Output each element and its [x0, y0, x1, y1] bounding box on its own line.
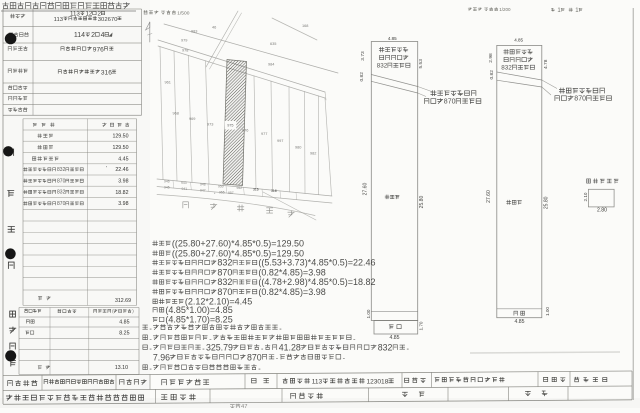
svg-text:(4.85*1.70)=8.25: (4.85*1.70)=8.25	[165, 315, 232, 325]
svg-text:25.80: 25.80	[544, 196, 550, 209]
svg-text:870: 870	[217, 267, 232, 277]
svg-text:976: 976	[93, 46, 104, 53]
svg-text:997: 997	[277, 138, 283, 143]
svg-text:870: 870	[574, 96, 586, 103]
svg-text:957: 957	[228, 191, 234, 195]
svg-text:4.78: 4.78	[543, 59, 549, 69]
svg-text:832: 832	[217, 277, 232, 287]
svg-text:979: 979	[181, 38, 187, 43]
svg-text:302670: 302670	[98, 17, 118, 23]
svg-text:870: 870	[217, 287, 232, 297]
svg-text:7.96: 7.96	[153, 352, 170, 362]
svg-text:22.46: 22.46	[115, 167, 128, 173]
svg-text:947: 947	[200, 189, 206, 193]
svg-text:316: 316	[101, 69, 112, 76]
svg-text:312.69: 312.69	[115, 298, 131, 304]
svg-text:4.85: 4.85	[514, 37, 523, 42]
svg-text:984: 984	[268, 62, 275, 67]
svg-text:1.00: 1.00	[545, 307, 550, 316]
svg-text:18.82: 18.82	[115, 190, 128, 196]
svg-text:832: 832	[501, 64, 512, 71]
svg-text:46: 46	[212, 24, 216, 29]
svg-text:2.80: 2.80	[597, 208, 607, 214]
svg-text:(0.82*4.85)=3.98: (0.82*4.85)=3.98	[258, 267, 325, 277]
svg-text:870: 870	[247, 352, 262, 362]
svg-text:25.80: 25.80	[419, 196, 425, 209]
svg-text:129.50: 129.50	[112, 134, 128, 140]
svg-text:((4.78+2.98)*4.85*0.5)=18.82: ((4.78+2.98)*4.85*0.5)=18.82	[258, 277, 375, 287]
svg-text:113: 113	[54, 17, 64, 23]
svg-text:2.10: 2.10	[583, 192, 588, 201]
svg-text:1.00: 1.00	[366, 309, 371, 318]
svg-text:318: 318	[271, 189, 277, 193]
svg-text:47: 47	[241, 404, 247, 408]
svg-text:832: 832	[57, 190, 66, 196]
svg-text:976: 976	[242, 128, 248, 133]
svg-text:832: 832	[217, 258, 232, 268]
svg-text:5.53: 5.53	[418, 59, 424, 69]
svg-text:13.10: 13.10	[115, 365, 128, 371]
svg-text:961: 961	[165, 80, 171, 85]
svg-text:870: 870	[57, 179, 66, 185]
svg-text:1.70: 1.70	[418, 321, 423, 330]
svg-text:4.85: 4.85	[388, 36, 397, 41]
svg-text:950: 950	[218, 184, 224, 188]
svg-text:4.85: 4.85	[514, 319, 524, 325]
svg-text:(4.85*1.00)=4.85: (4.85*1.00)=4.85	[165, 305, 232, 315]
svg-text:27.60: 27.60	[363, 183, 369, 196]
svg-text:41.28: 41.28	[279, 343, 301, 353]
svg-text:978: 978	[182, 48, 188, 53]
svg-text:(0.82*4.85)=3.98: (0.82*4.85)=3.98	[258, 287, 325, 297]
svg-text:4: 4	[101, 32, 105, 39]
svg-text:943: 943	[181, 181, 187, 185]
svg-text:973: 973	[207, 122, 213, 127]
svg-text:975: 975	[227, 124, 233, 128]
svg-text:3.98: 3.98	[118, 201, 128, 207]
svg-text:941: 941	[182, 187, 188, 191]
svg-text:1/200: 1/200	[499, 7, 511, 12]
svg-text:948: 948	[200, 183, 206, 187]
svg-text:977: 977	[261, 131, 267, 136]
svg-text:955: 955	[219, 190, 225, 194]
svg-text:3.98: 3.98	[118, 179, 128, 185]
svg-text:((5.53+3.73)*4.85*0.5)=22.46: ((5.53+3.73)*4.85*0.5)=22.46	[258, 258, 375, 268]
svg-text:((25.80+27.60)*4.85*0.5)=129.5: ((25.80+27.60)*4.85*0.5)=129.50	[172, 238, 304, 248]
svg-text:27.60: 27.60	[486, 190, 492, 203]
svg-text:8.25: 8.25	[119, 331, 129, 337]
svg-text:113: 113	[312, 378, 323, 385]
svg-text:870: 870	[57, 201, 66, 207]
svg-text:4.85: 4.85	[389, 335, 399, 341]
svg-text:832: 832	[378, 343, 393, 353]
svg-text:2.98: 2.98	[488, 53, 494, 63]
svg-text:123018: 123018	[366, 378, 388, 385]
svg-text:870: 870	[444, 98, 456, 105]
svg-text:1/500: 1/500	[177, 10, 189, 16]
svg-text:168: 168	[302, 23, 308, 28]
svg-text:4.45: 4.45	[118, 157, 128, 163]
svg-text:0.82: 0.82	[489, 70, 495, 80]
svg-text:': '	[106, 166, 107, 172]
svg-text:832: 832	[377, 62, 388, 69]
svg-text:129.50: 129.50	[112, 145, 128, 151]
svg-text:945: 945	[164, 186, 170, 190]
svg-text:3.73: 3.73	[360, 51, 366, 61]
svg-text:114: 114	[74, 32, 85, 39]
svg-text:2: 2	[91, 32, 95, 39]
svg-text:952: 952	[237, 186, 243, 190]
svg-text:325.79: 325.79	[206, 343, 233, 353]
svg-text:980: 980	[295, 145, 301, 150]
svg-text:983: 983	[191, 29, 197, 34]
svg-text:968: 968	[173, 111, 179, 116]
svg-text:982: 982	[310, 151, 316, 156]
svg-text:946: 946	[164, 179, 170, 183]
svg-text:832: 832	[57, 167, 66, 173]
svg-text:635: 635	[270, 41, 276, 46]
svg-text:0.82: 0.82	[359, 72, 365, 82]
svg-text:969: 969	[189, 116, 195, 121]
svg-text:316: 316	[253, 187, 259, 191]
svg-text:4.85: 4.85	[119, 320, 129, 326]
